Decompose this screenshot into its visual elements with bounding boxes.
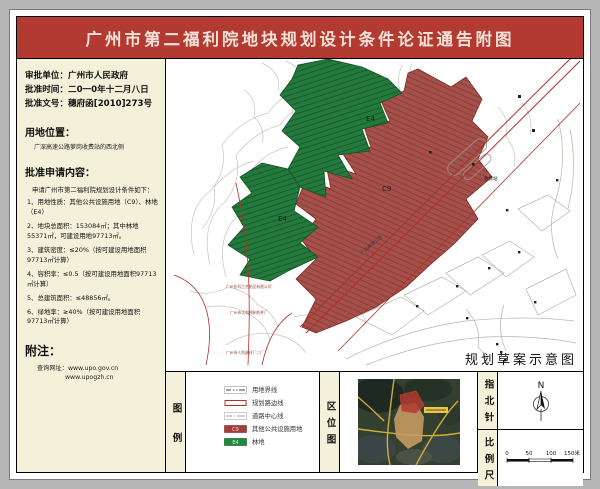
legend-item-boundary: 用地界线 [224,385,319,394]
map-caption: 规划草案示意图 [465,349,577,368]
approval-doc-label: 批准文号： [25,99,68,109]
scale-tick-label: 150米 [564,449,580,457]
zone-label-e4-lower: E4 [278,215,287,223]
requirement-item: 5、总建筑面积：≤48856㎡。 [27,294,158,304]
approval-doc-line: 批准文号：穗府函[2010]273号 [25,98,158,112]
north-arrow-row: 指北针 N [478,372,583,430]
centerline-icon [224,412,247,420]
location-map-image [358,379,460,465]
approval-time-value: 二0一0年十二月八日 [68,85,149,95]
page-frame: 广州市第二福利院地块规划设计条件论证通告附图 审批单位：广州市人民政府 批准时间… [0,0,600,489]
requirement-item: 1、用地性质：其他公共设施用地（C9）、林地（E4） [27,198,158,218]
plan-map: E4 E4 C9 收费站 广深高速公路 广州东科工艺制品有限公司 广州市太和预制… [166,59,583,371]
legend-item-e4: E4 林地 [224,437,319,446]
scale-bar-row: 比例尺 0 50 100 150米 [478,430,583,487]
north-scale-block: 指北针 N 比例尺 0 50 100 [478,372,583,472]
location-map [340,372,478,472]
c9-zone-chip: C9 [224,425,247,433]
approved-content-intro: 申请广州市第二福利院规划设计条件如下： [32,185,158,194]
requirement-item: 3、建筑密度：≤20%（按可建设用地面积97713㎡计算） [27,246,158,266]
approved-content-heading: 批准申请内容： [25,164,158,179]
north-arrow-icon: N [501,376,581,424]
plan-map-svg: E4 E4 C9 收费站 广深高速公路 广州东科工艺制品有限公司 广州市太和预制… [166,59,580,366]
location-value: 广深高速公路萝岗收费站的西北侧 [34,142,158,151]
notice-sheet: 广州市第二福利院地块规划设计条件论证通告附图 审批单位：广州市人民政府 批准时间… [16,16,584,473]
scale-bar-panel-label: 比例尺 [478,430,498,487]
approval-unit-value: 广州市人民政府 [68,71,128,81]
notes-site-label: 查询网址： [37,365,68,372]
scale-tick-label: 100 [545,451,556,457]
requirement-item: 2、地块总面积：153084㎡；其中林地55371㎡，可建设用地97713㎡。 [27,222,158,242]
location-heading: 用地位置： [25,124,158,139]
scale-tick-label: 50 [525,451,532,457]
map-label-factory-2: 广州市太和预制构件厂 [230,310,268,315]
legend-item-c9: C9 其他公共设施用地 [224,424,319,433]
e4-zone-chip: E4 [224,438,247,446]
notes-site-line: 查询网址：www.upo.gov.cn [37,363,158,372]
north-arrow-box: N [498,372,583,429]
north-arrow-panel-label: 指北针 [478,372,498,429]
scale-bar: 0 50 100 150米 [501,441,581,475]
approval-time-line: 批准时间：二0一0年十二月八日 [25,84,158,98]
requirement-item: 4、容积率：≤0.5（按可建设用地面积97713㎡计算） [27,270,158,290]
page-title: 广州市第二福利院地块规划设计条件论证通告附图 [86,26,515,50]
scale-tick-label: 0 [505,451,509,457]
legend-label: 用地界线 [252,385,277,394]
zone-label-c9: C9 [382,185,391,193]
legend-label: 规划路边线 [252,398,283,407]
location-map-panel-label: 区位图 [320,372,340,472]
map-label-factory-1: 广州东科工艺制品有限公司 [226,284,272,289]
legend: 用地界线 规划路边线 道路中心线 C9 其他公共设施 [186,372,320,472]
north-letter: N [537,381,544,391]
map-label-toll-station: 收费站 [484,175,498,182]
bottom-strip: 图例 用地界线 规划路边线 道路中心线 [166,371,583,472]
scale-bar-box: 0 50 100 150米 [498,430,583,487]
approval-time-label: 批准时间： [25,85,68,95]
legend-panel-label: 图例 [166,372,186,472]
info-panel: 审批单位：广州市人民政府 批准时间：二0一0年十二月八日 批准文号：穗府函[20… [17,59,166,472]
legend-label: 其他公共设施用地 [252,424,302,433]
zone-label-e4-upper: E4 [366,115,375,123]
frame-inner: 广州市第二福利院地块规划设计条件论证通告附图 审批单位：广州市人民政府 批准时间… [9,9,591,480]
road-edge-line-icon [224,399,247,407]
approval-unit-label: 审批单位： [25,71,68,81]
title-bar: 广州市第二福利院地块规划设计条件论证通告附图 [17,17,583,59]
notes-site-url-2: www.upogzh.cn [65,374,158,381]
legend-item-road-edge: 规划路边线 [224,398,319,407]
legend-item-centerline: 道路中心线 [224,411,319,420]
legend-label: 林地 [252,437,265,446]
requirement-item: 6、绿地率：≥40%（按可建设用地面积97713㎡计算） [27,308,158,328]
notes-site-url-1: www.upo.gov.cn [68,365,118,372]
boundary-line-icon [224,386,247,394]
notes-heading: 附注： [25,342,158,359]
legend-label: 道路中心线 [252,411,283,420]
approval-doc-value: 穗府函[2010]273号 [68,99,152,109]
c9-chip-text: C9 [232,427,239,433]
map-label-factory-3: 广州市人防器材厂二厂 [226,350,264,355]
approval-unit-line: 审批单位：广州市人民政府 [25,70,158,84]
e4-chip-text: E4 [232,440,238,446]
